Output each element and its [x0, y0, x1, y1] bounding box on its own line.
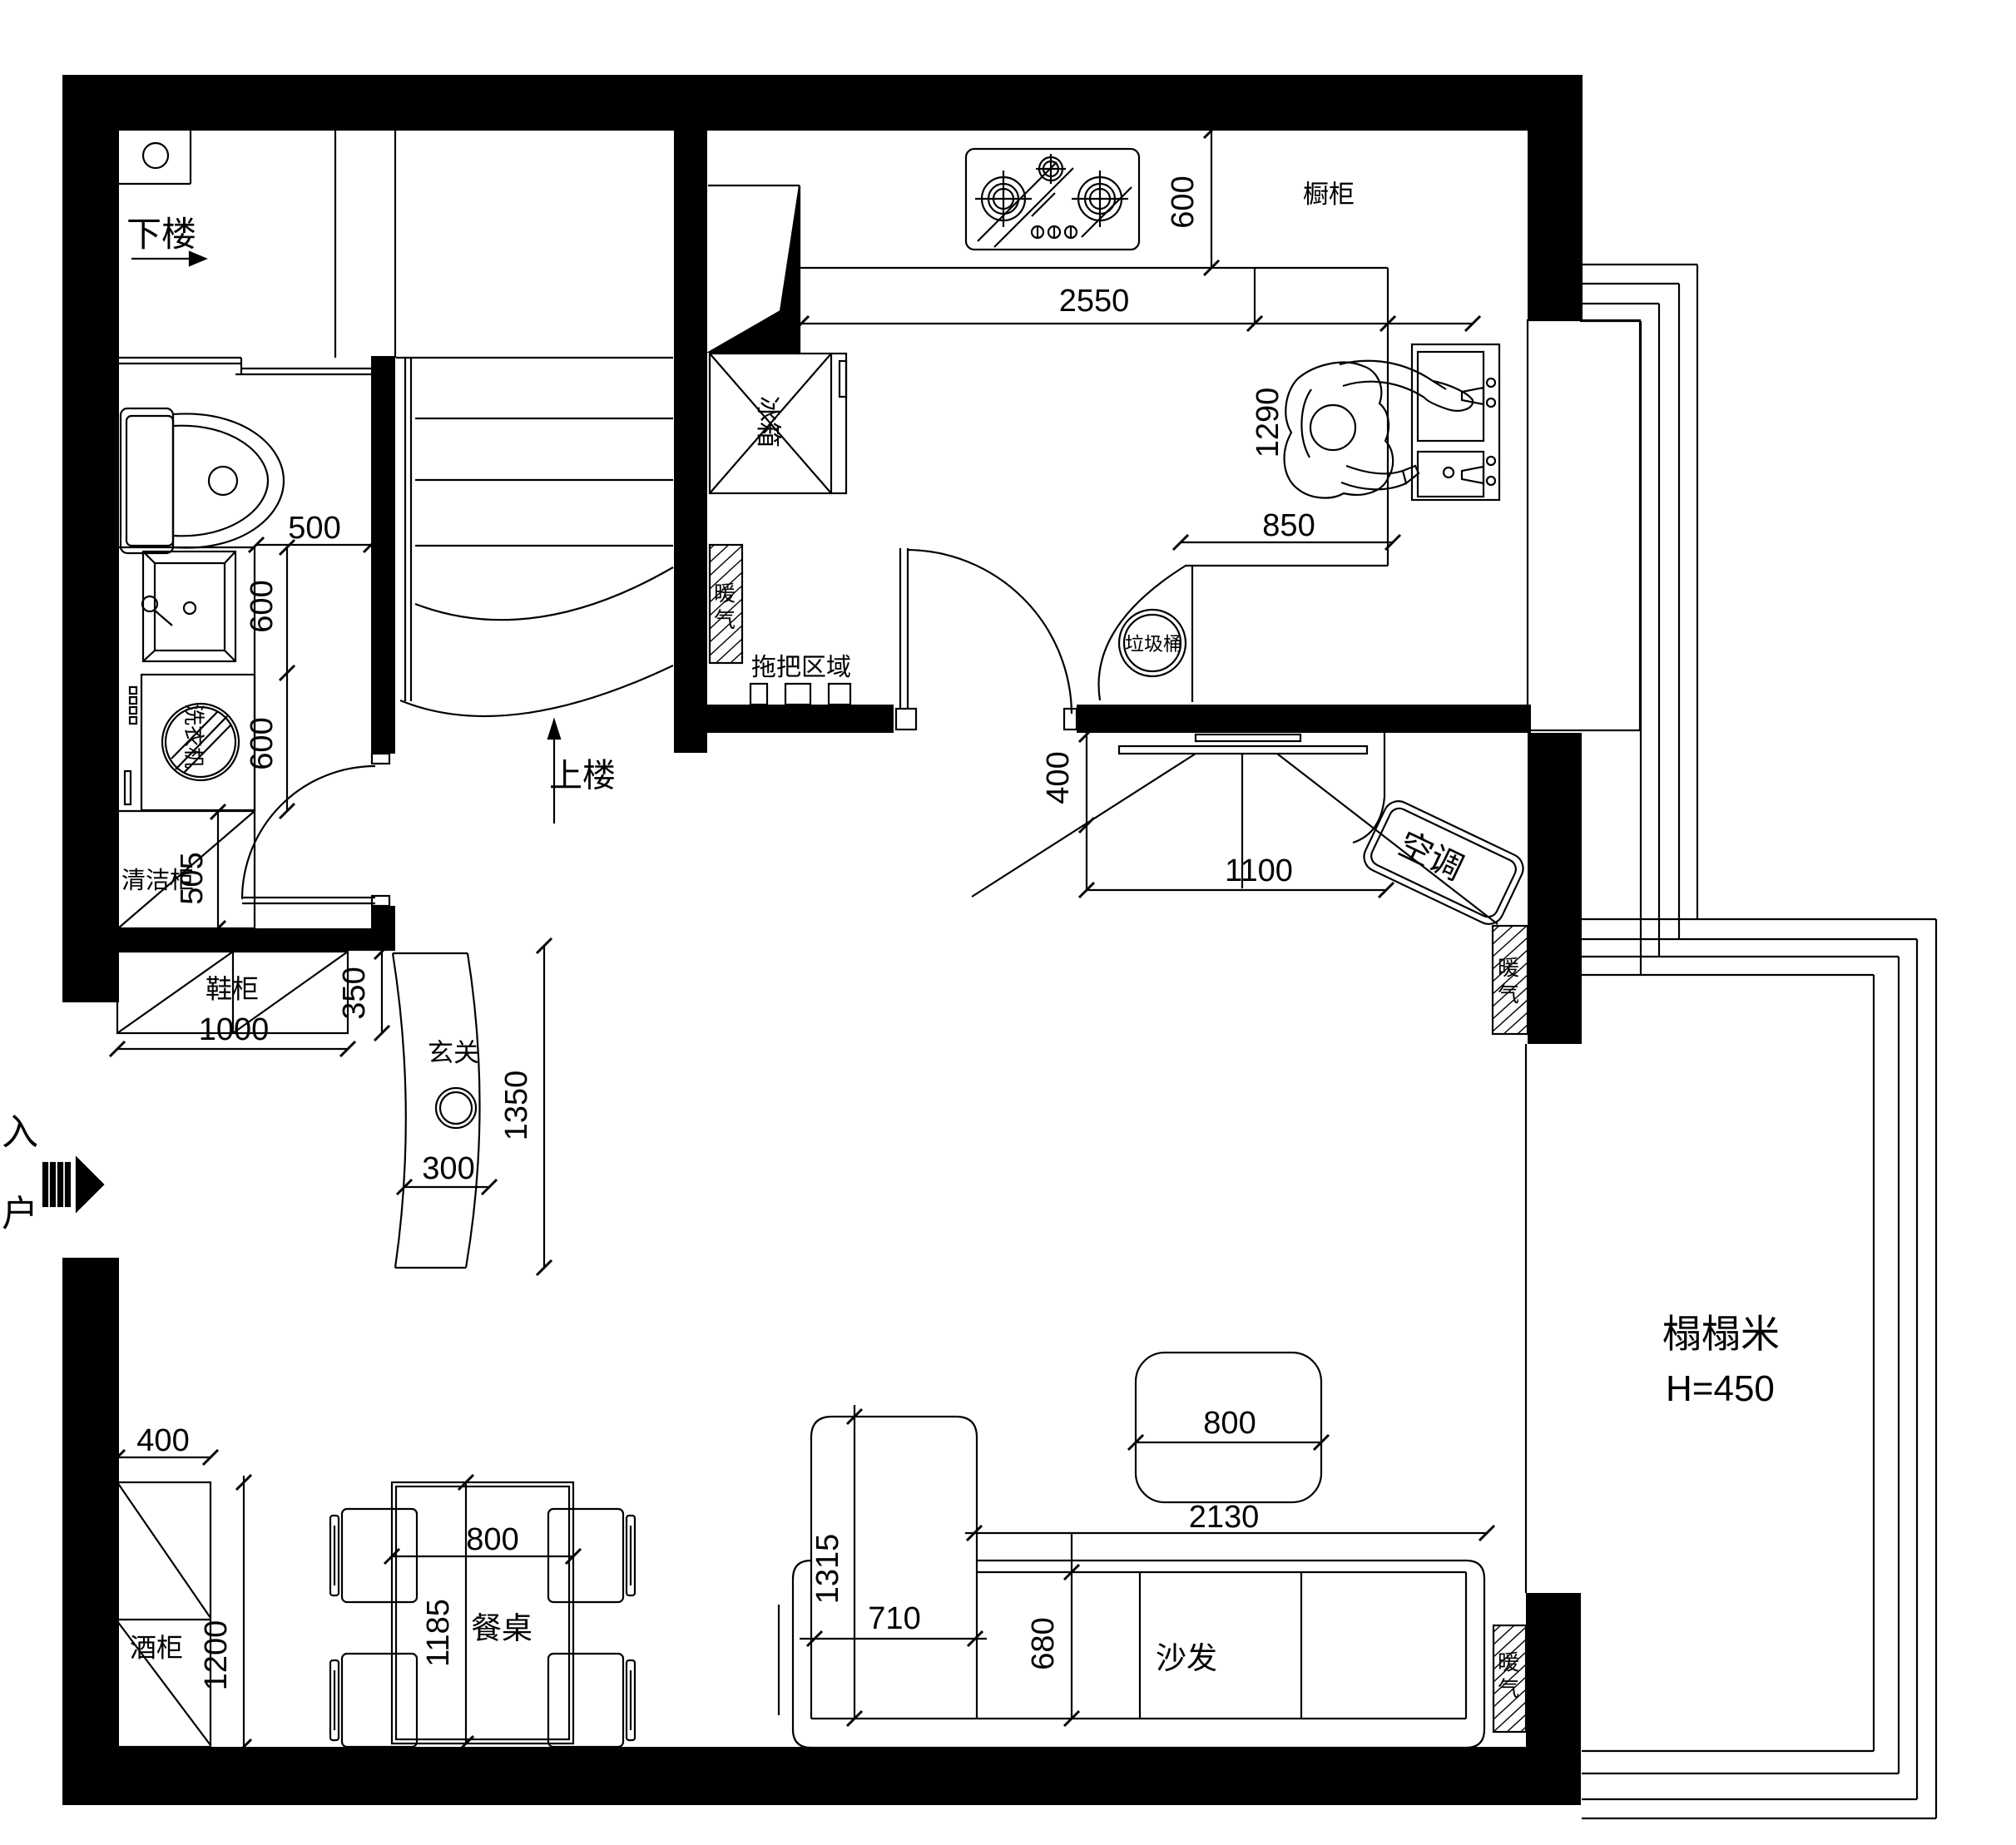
- svg-text:850: 850: [1262, 508, 1315, 543]
- svg-text:1315: 1315: [810, 1534, 845, 1605]
- svg-text:H=450: H=450: [1666, 1368, 1775, 1409]
- svg-text:2550: 2550: [1059, 284, 1130, 319]
- svg-text:600: 600: [1166, 176, 1201, 228]
- svg-text:1200: 1200: [199, 1620, 234, 1691]
- svg-text:2130: 2130: [1189, 1500, 1260, 1535]
- svg-text:400: 400: [136, 1423, 189, 1458]
- svg-text:350: 350: [337, 967, 372, 1019]
- svg-text:800: 800: [466, 1522, 518, 1557]
- svg-text:600: 600: [245, 580, 280, 632]
- svg-text:710: 710: [868, 1601, 920, 1636]
- svg-text:1185: 1185: [421, 1599, 456, 1667]
- svg-text:800: 800: [1203, 1406, 1256, 1441]
- svg-text:1290: 1290: [1251, 388, 1285, 458]
- svg-text:500: 500: [288, 511, 340, 546]
- svg-text:680: 680: [1026, 1617, 1061, 1669]
- svg-text:1100: 1100: [1225, 853, 1293, 888]
- svg-text:600: 600: [245, 717, 280, 769]
- svg-text:505: 505: [175, 852, 210, 904]
- svg-text:1350: 1350: [499, 1071, 534, 1141]
- svg-text:400: 400: [1041, 751, 1076, 804]
- svg-text:1000: 1000: [199, 1012, 270, 1047]
- svg-text:300: 300: [422, 1151, 474, 1186]
